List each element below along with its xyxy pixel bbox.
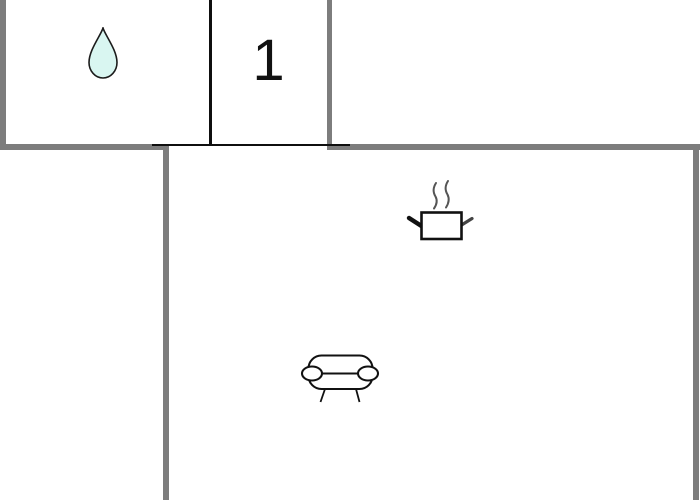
wall-outer-left [0,0,6,150]
water-drop-shape [89,28,117,78]
wall-bedroom-right [327,0,333,150]
wall-living-room-right [693,144,699,500]
wall-living-room-top [327,144,700,150]
sofa-icon [300,352,380,404]
sofa-armrest-left [302,367,322,381]
sofa-armrest-right [358,367,378,381]
floorplan-canvas: 1 [0,0,700,500]
sofa-leg-right [356,389,360,402]
pot-body [422,213,462,240]
bedroom-number-label: 1 [211,26,326,96]
steam-line-left [434,183,437,209]
wall-bedroom-bottom [152,144,350,147]
water-drop-icon [88,27,118,79]
steam-line-right [446,181,449,208]
sofa-leg-left [321,389,326,402]
cooking-pot-icon [405,178,477,242]
wall-living-room-left [163,144,169,500]
wall-bathroom-bottom [0,144,169,150]
